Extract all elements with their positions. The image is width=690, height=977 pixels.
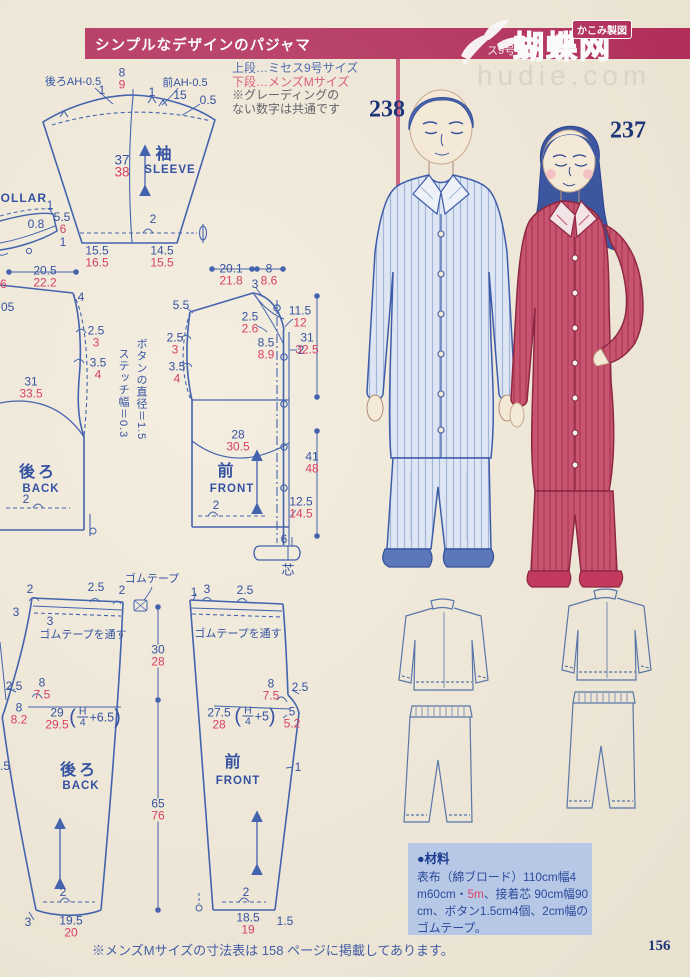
materials-line: cm、ボタン1.5cm4個、2cm幅の xyxy=(417,903,583,920)
pants-back-hip-formula: (H4+6.5) xyxy=(69,707,121,728)
logo-size-text: ス9号 xyxy=(487,42,515,58)
front-upper-length-measure: 3132.5 xyxy=(295,333,318,356)
pants-front-hem-allowance: 2 xyxy=(243,885,250,899)
collar-measure-mens: 6 xyxy=(60,222,67,236)
sleeve-cap-measure: 89 xyxy=(119,68,126,91)
pants-front-hem-measure: 18.519 xyxy=(236,913,259,936)
back-shoulder-measure: 4 xyxy=(78,290,85,304)
pattern-diagrams xyxy=(0,0,690,977)
back-hem-allowance: 2 xyxy=(23,492,30,506)
pants-front-title-en: FRONT xyxy=(216,775,261,787)
pants-back-rise-measure: 3028 xyxy=(149,645,166,668)
pants-front-waist-measure: 3 xyxy=(204,582,211,596)
front-neck-measure: 2.52.6 xyxy=(242,312,259,335)
front-hem-measure: 12.514.5 xyxy=(289,497,312,520)
sleeve-measure: 15 xyxy=(173,88,186,102)
sleeve-hem-left-measure: 15.516.5 xyxy=(85,246,108,269)
footer-note: ※メンズMサイズの寸法表は 158 ページに掲載してあります。 xyxy=(92,940,454,959)
front-armhole-measure: 2.53 xyxy=(167,333,184,356)
sleeve-back-ah-label: 後ろAH-0.5 xyxy=(45,73,101,89)
page-title: シンプルなデザインのパジャマ xyxy=(95,34,311,55)
sleeve-length-measure: 3738 xyxy=(114,155,129,178)
hudie-watermark: hudie.com xyxy=(477,60,651,92)
pants-front-title-jp: 前 xyxy=(224,748,243,772)
front-title-jp: 前 xyxy=(217,457,236,481)
collar-measure: 1 xyxy=(47,198,54,212)
front-lapel-measure: 11.512 xyxy=(289,306,311,329)
materials-line: 表布（綿ブロード）110cm幅4 xyxy=(417,869,583,886)
pants-back-hem-measure: 3 xyxy=(25,915,32,929)
sleeve-hem-allowance: 2 xyxy=(150,212,157,226)
front-title-en: FRONT xyxy=(210,483,255,495)
pants-back-title-en: BACK xyxy=(62,780,99,792)
pants-back-crotch-measure: 2.5 xyxy=(6,679,23,693)
pants-front-hip-formula: (H4+5) xyxy=(234,706,275,727)
page-number: 156 xyxy=(648,938,671,955)
front-center-measure: 8.58.9 xyxy=(258,338,275,361)
front-shoulder-measure: 5.5 xyxy=(173,298,190,312)
size-line-misses: 上段…ミセス9号サイズ xyxy=(232,62,358,76)
front-band-measure: 6 xyxy=(281,532,288,546)
front-neck-measure: 3 xyxy=(252,277,259,291)
collar-outline xyxy=(0,209,57,255)
edge-fragment: .5 xyxy=(0,759,10,773)
pants-front-side-measure: 1 xyxy=(295,760,302,774)
back-title-jp: 後ろ xyxy=(19,458,57,482)
materials-line: ゴムテープ。 xyxy=(417,920,583,937)
pants-back-title-jp: 後ろ xyxy=(60,756,98,780)
garment-back-views xyxy=(399,589,651,822)
man-illustration xyxy=(345,72,530,577)
pants-front-crotch-measure: 55.2 xyxy=(284,707,301,730)
stitch-width-note: ステッチ幅＝0.3 xyxy=(115,348,131,438)
back-armhole-measure: 2.53 xyxy=(88,326,105,349)
elastic-tape-label: ゴムテープ xyxy=(125,570,179,586)
edge-fragment: 05 xyxy=(1,300,14,314)
collar-measure: 1 xyxy=(60,235,67,249)
sleeve-measure: 1 xyxy=(149,85,156,99)
pants-front-hip-measure: 27.528 xyxy=(207,708,230,731)
button-diameter-note: ボタンの直径＝1.5 xyxy=(133,338,149,440)
size-note-1: ※グレーディングの xyxy=(232,89,358,103)
kakomi-badge: かこみ製図 xyxy=(572,20,632,39)
back-length-measure: 3133.5 xyxy=(19,377,42,400)
jacket-back-outline xyxy=(0,270,96,536)
size-note-2: ない数字は共通です xyxy=(232,103,358,117)
collar-title: COLLAR xyxy=(0,191,47,205)
size-line-mens: 下段…メンズMサイズ xyxy=(232,76,358,90)
pants-back-hem-allowance: 2 xyxy=(60,885,67,899)
sleeve-title-en: SLEEVE xyxy=(144,164,195,176)
back-width-measure: 20.522.2 xyxy=(33,266,56,289)
collar-measure: 0.8 xyxy=(28,217,45,231)
materials-line: m60cm・5m、接着芯 90cm幅90 xyxy=(417,886,583,903)
pants-back-waist-measure: 2 xyxy=(27,582,34,596)
size-info-block: 上段…ミセス9号サイズ 下段…メンズMサイズ ※グレーディングの ない数字は共通… xyxy=(232,62,358,116)
edge-fragment: 6 xyxy=(0,277,7,291)
front-armhole-measure: 3.54 xyxy=(169,362,186,385)
pants-length-measure: 6576 xyxy=(149,799,166,822)
style-number-man: 238 xyxy=(369,97,405,124)
pants-back-crotch-measure: 87.5 xyxy=(34,678,51,701)
sleeve-hem-right-measure: 14.515.5 xyxy=(150,246,173,269)
front-hem-allowance: 2 xyxy=(213,498,220,512)
pants-front-crotch-measure: 2.5 xyxy=(292,680,309,694)
pants-back-waist-measure: 2.5 xyxy=(88,580,105,594)
materials-box: ●材料 表布（綿ブロード）110cm幅4 m60cm・5m、接着芯 90cm幅9… xyxy=(408,843,592,935)
pants-back-casing-measure: 3 xyxy=(13,605,20,619)
title-banner: シンプルなデザインのパジャマ ス9号 蝴蝶网 かこみ製図 xyxy=(85,28,690,59)
materials-header: ●材料 xyxy=(417,848,583,867)
back-armhole-measure: 3.54 xyxy=(90,358,107,381)
pants-front-waist-measure: 1 xyxy=(191,585,198,599)
elastic-thread-note: ゴムテープを通す xyxy=(194,625,281,641)
pants-front-waist-measure: 2.5 xyxy=(237,583,254,597)
elastic-thread-note: ゴムテープを通す xyxy=(39,626,126,642)
magazine-page: シンプルなデザインのパジャマ ス9号 蝴蝶网 かこみ製図 hudie.com 上… xyxy=(0,0,690,977)
front-curve-measure: 2830.5 xyxy=(226,430,249,453)
front-width-measure: 20.121.8 xyxy=(219,264,242,287)
front-width-measure: 88.6 xyxy=(261,264,278,287)
front-length-measure: 4148 xyxy=(305,452,318,475)
sleeve-measure: 1 xyxy=(99,83,106,97)
sleeve-measure: 0.5 xyxy=(200,93,217,107)
pants-back-hem-measure: 19.520 xyxy=(59,916,82,939)
pants-back-crotch-measure: 88.2 xyxy=(11,703,28,726)
style-number-woman: 237 xyxy=(610,118,646,145)
woman-illustration xyxy=(505,103,665,593)
pants-front-hem-measure: 1.5 xyxy=(277,914,294,928)
pants-front-crotch-measure: 87.5 xyxy=(263,679,280,702)
sleeve-title-jp: 袖 xyxy=(155,140,174,164)
pants-back-hip-measure: 2929.5 xyxy=(45,708,68,731)
interfacing-label: 芯 xyxy=(281,560,294,579)
